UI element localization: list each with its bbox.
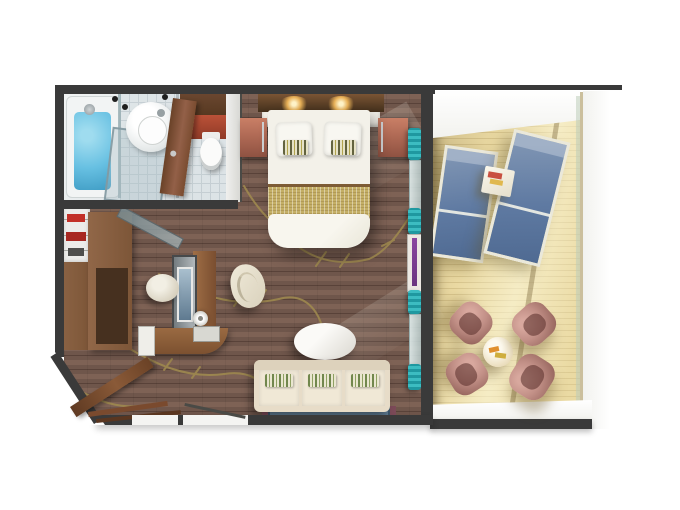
ceiling-spotlight (122, 104, 128, 110)
table-lamp (193, 311, 208, 326)
lamp-stem (381, 122, 383, 152)
drawer-unit (138, 326, 155, 356)
doorway-opening (132, 415, 178, 425)
sofa (254, 360, 390, 412)
ceiling-spotlight (162, 94, 168, 100)
balcony-dining-table (483, 337, 513, 367)
chair-shell (235, 270, 261, 303)
door-handle-icon (170, 150, 177, 157)
balcony-ledge-right (583, 91, 622, 429)
washbasin-bowl (138, 116, 167, 145)
wall-bathroom (55, 200, 238, 209)
drink-yellow (495, 352, 507, 358)
nightstand-right (378, 118, 408, 157)
balcony-base-wall (430, 419, 592, 429)
balcony-side-table (481, 166, 515, 198)
lamp-top (198, 316, 203, 321)
nightstand-left (240, 118, 267, 157)
curtain-bedroom-top (408, 128, 421, 160)
floorplan-3d-render (0, 0, 680, 510)
wall-balcony-divider (421, 85, 433, 425)
shelf-item-red (66, 232, 86, 241)
cabinet-open-shelf (96, 268, 128, 344)
faucet-icon (157, 109, 165, 117)
accent-pillow-left (283, 140, 308, 155)
chair-seat (520, 310, 550, 340)
curtain-living-top (408, 290, 421, 314)
shelf-item-red (67, 214, 85, 222)
lounger-headrest (446, 148, 495, 166)
tall-cabinet (88, 212, 132, 350)
lamp-stem (262, 122, 264, 152)
wall-left (55, 85, 64, 357)
wall-top (55, 85, 435, 94)
ceiling-spotlight (112, 96, 118, 102)
curtain-bedroom-bottom (408, 208, 421, 234)
wardrobe (63, 262, 90, 350)
chair-seat (456, 309, 485, 338)
duvet (268, 214, 370, 248)
curtain-living-bottom (408, 364, 421, 390)
showerhead-icon (84, 104, 95, 115)
shelf-item-dark (68, 248, 84, 256)
sofa-pillow (265, 374, 293, 387)
chair-seat (452, 360, 480, 389)
book-yellow (490, 179, 504, 186)
lounger-fold (498, 201, 551, 217)
desk-drawer (193, 326, 220, 342)
sofa-pillow (351, 374, 379, 387)
sofa-back (254, 360, 390, 370)
lounger-fold (438, 209, 488, 219)
sofa-pillow (308, 374, 336, 387)
stool (146, 274, 179, 302)
coffee-table (294, 323, 356, 360)
toilet (200, 138, 222, 170)
tv-screen (177, 267, 193, 322)
mirror-glass (412, 238, 417, 286)
chair-seat (518, 362, 548, 393)
accent-pillow-right (331, 140, 356, 155)
